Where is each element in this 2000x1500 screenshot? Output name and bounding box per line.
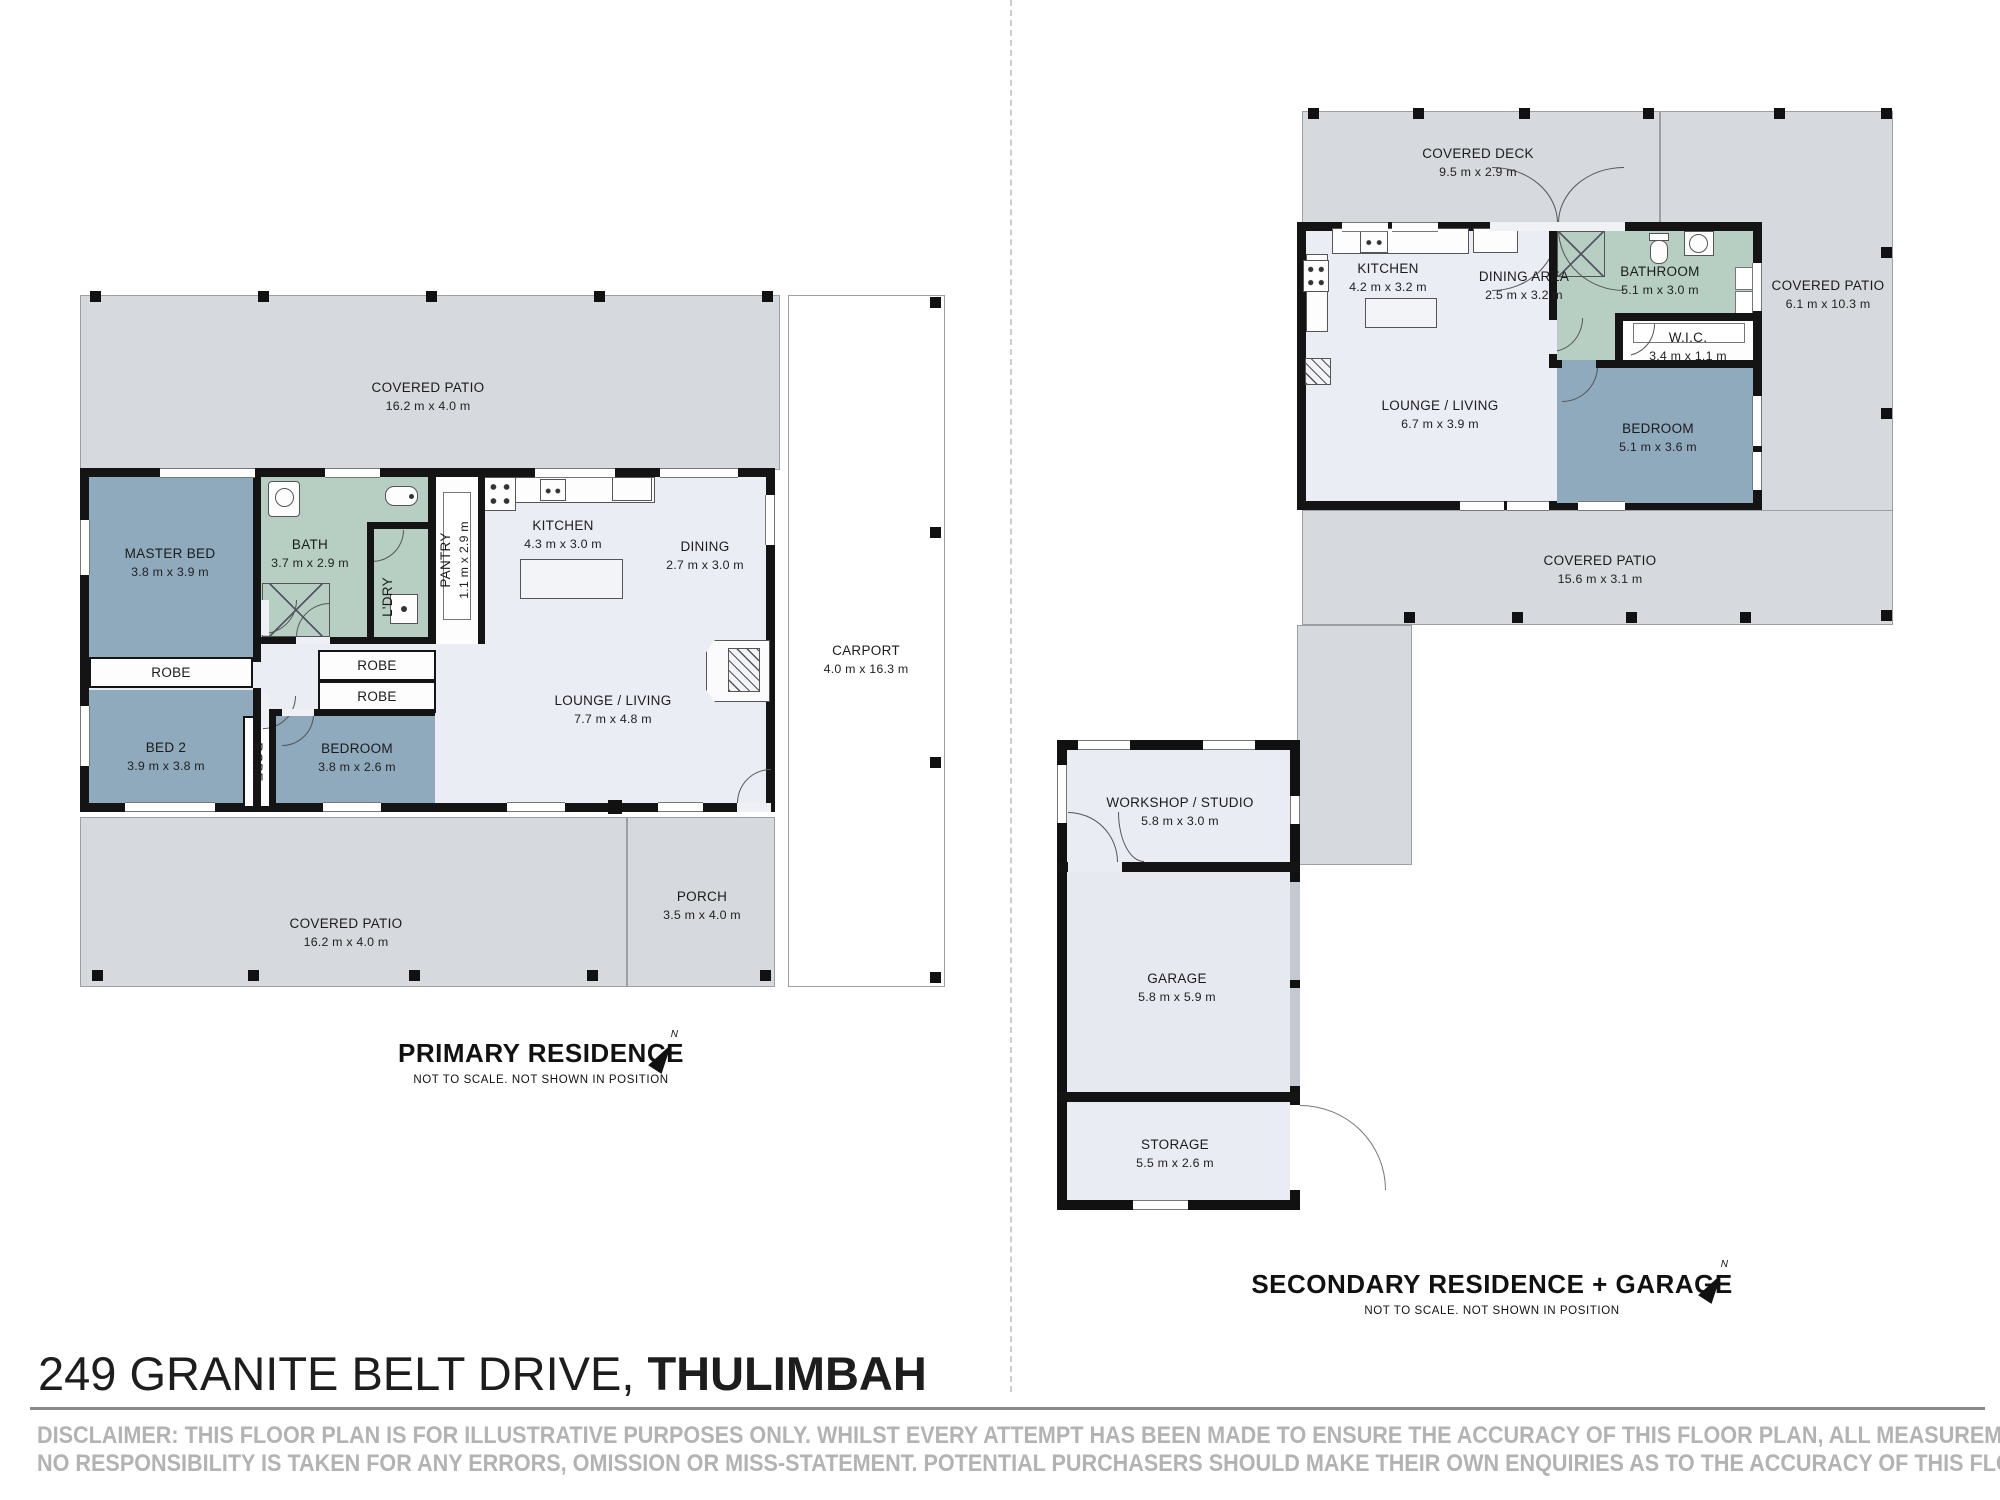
north-arrow-icon-secondary: N	[1705, 1272, 1721, 1302]
secondary-covered-patio-right-top	[1660, 111, 1893, 225]
room-label-carport: CARPORT4.0 m x 16.3 m	[824, 641, 909, 679]
room-label-covered-deck: COVERED DECK9.5 m x 2.9 m	[1422, 144, 1534, 182]
stove2-icon	[1303, 260, 1329, 292]
disclaimer-line-1: DISCLAIMER: THIS FLOOR PLAN IS FOR ILLUS…	[37, 1422, 1801, 1450]
north-arrow-icon: N	[655, 1042, 671, 1072]
secondary-caption-title: SECONDARY RESIDENCE + GARAGE	[1251, 1269, 1732, 1300]
primary-caption-title: PRIMARY RESIDENCE	[398, 1038, 684, 1069]
toilet2-tank	[1649, 233, 1669, 241]
secondary-caption-subtitle: NOT TO SCALE. NOT SHOWN IN POSITION	[1251, 1305, 1732, 1317]
room-label-garage: GARAGE5.8 m x 5.9 m	[1138, 969, 1216, 1007]
kitchen-sink-icon	[540, 479, 566, 501]
room-label-covered-patio-bottom2: COVERED PATIO15.6 m x 3.1 m	[1544, 551, 1657, 589]
room-label-kitchen: KITCHEN4.3 m x 3.0 m	[524, 516, 602, 554]
room-label-ldry: L'DRY	[378, 577, 398, 617]
room-label-wic: W.I.C.3.4 m x 1.1 m	[1649, 328, 1727, 366]
garage-roller-door-a	[1290, 880, 1300, 982]
room-label-covered-patio-bottom: COVERED PATIO16.2 m x 4.0 m	[290, 914, 403, 952]
kitchen-end-unit	[612, 477, 652, 501]
room-label-porch: PORCH3.5 m x 4.0 m	[663, 887, 741, 925]
room-label-storage: STORAGE5.5 m x 2.6 m	[1136, 1135, 1214, 1173]
room-label-bath: BATH3.7 m x 2.9 m	[271, 535, 349, 573]
primary-caption-subtitle: NOT TO SCALE. NOT SHOWN IN POSITION	[398, 1074, 684, 1086]
title-separator-line	[30, 1407, 1985, 1410]
page-title: 249 GRANITE BELT DRIVE, THULIMBAH	[38, 1346, 927, 1401]
room-label-lounge2: LOUNGE / LIVING6.7 m x 3.9 m	[1381, 396, 1498, 434]
room-label-bedroom: BEDROOM3.8 m x 2.6 m	[318, 739, 396, 777]
fireplace2-hatch	[1305, 358, 1331, 385]
plan-divider-dashed-line	[1010, 0, 1012, 1392]
room-label-pantry: PANTRY1.1 m x 2.9 m	[436, 521, 474, 599]
room-label-bedroom2: BEDROOM5.1 m x 3.6 m	[1619, 419, 1697, 457]
room-label-robe-vertical: ROBE	[247, 742, 267, 781]
floor-plan-page: COVERED PATIO16.2 m x 4.0 m CARPORT4.0 m…	[0, 0, 2000, 1500]
room-label-lounge: LOUNGE / LIVING7.7 m x 4.8 m	[554, 691, 671, 729]
fireplace-hatch	[728, 648, 760, 692]
room-label-robe-b: ROBE	[357, 687, 396, 707]
room-label-covered-patio-top: COVERED PATIO16.2 m x 4.0 m	[372, 378, 485, 416]
secondary-walkway-strip	[1297, 625, 1412, 865]
bath2-shelf-b	[1735, 291, 1753, 314]
kitchen-island	[520, 559, 623, 599]
room-label-workshop: WORKSHOP / STUDIO5.8 m x 3.0 m	[1106, 793, 1253, 831]
page-title-address: 249 GRANITE BELT DRIVE,	[38, 1347, 647, 1400]
kitchen2-sink-icon	[1360, 230, 1388, 253]
page-title-suburb: THULIMBAH	[647, 1347, 926, 1400]
disclaimer-line-2: NO RESPONSIBILITY IS TAKEN FOR ANY ERROR…	[37, 1450, 1801, 1478]
stove-icon	[484, 477, 516, 511]
toilet2-icon	[1650, 240, 1668, 264]
room-label-bathroom2: BATHROOM5.1 m x 3.0 m	[1620, 262, 1699, 300]
room-label-dining: DINING2.7 m x 3.0 m	[666, 537, 744, 575]
room-label-kitchen2: KITCHEN4.2 m x 3.2 m	[1349, 259, 1427, 297]
garage-roller-door-b	[1290, 986, 1300, 1088]
room-label-bed2: BED 23.9 m x 3.8 m	[127, 738, 205, 776]
room-label-dining-area: DINING AREA2.5 m x 3.2 m	[1479, 267, 1569, 305]
secondary-caption: SECONDARY RESIDENCE + GARAGE NOT TO SCAL…	[1251, 1269, 1732, 1317]
primary-caption: PRIMARY RESIDENCE NOT TO SCALE. NOT SHOW…	[398, 1038, 684, 1086]
secondary-covered-patio-right	[1757, 223, 1893, 513]
bath2-shelf-a	[1735, 267, 1753, 290]
room-label-robe-master: ROBE	[151, 663, 190, 683]
primary-covered-patio-bottom	[80, 817, 627, 987]
room-label-robe-a: ROBE	[357, 656, 396, 676]
room-label-master-bed: MASTER BED3.8 m x 3.9 m	[125, 544, 216, 582]
room-label-covered-patio-right: COVERED PATIO6.1 m x 10.3 m	[1772, 276, 1885, 314]
kitchen2-island	[1365, 298, 1437, 328]
